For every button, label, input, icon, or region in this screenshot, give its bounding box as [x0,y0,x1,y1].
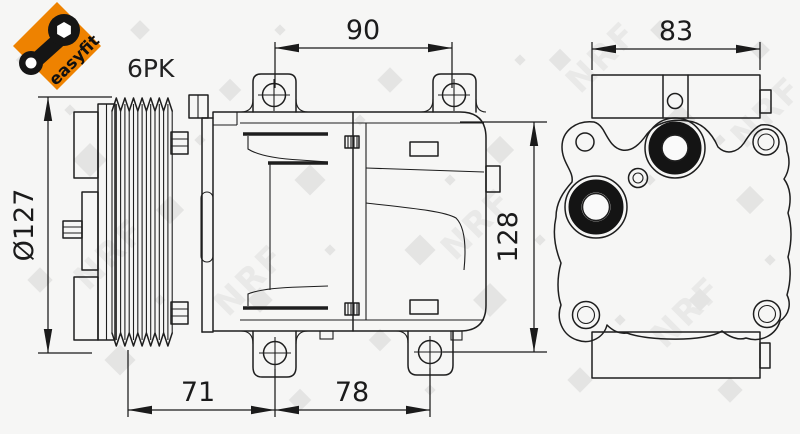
dimension-label: 128 [493,211,524,263]
dimension-label: 83 [659,16,693,47]
discharge-port [565,176,627,238]
suction-port [645,118,705,178]
catalog-image: NRF NRF NRF NRF NRF NRF easyfit 6PK [0,0,800,434]
dimension-label: 90 [346,15,380,46]
dimension-label: 78 [335,377,369,408]
dimension-label: Ø127 [9,189,40,262]
dimension-label: 71 [181,377,215,408]
pulley [112,98,172,346]
belt-type-label: 6PK [127,54,175,83]
